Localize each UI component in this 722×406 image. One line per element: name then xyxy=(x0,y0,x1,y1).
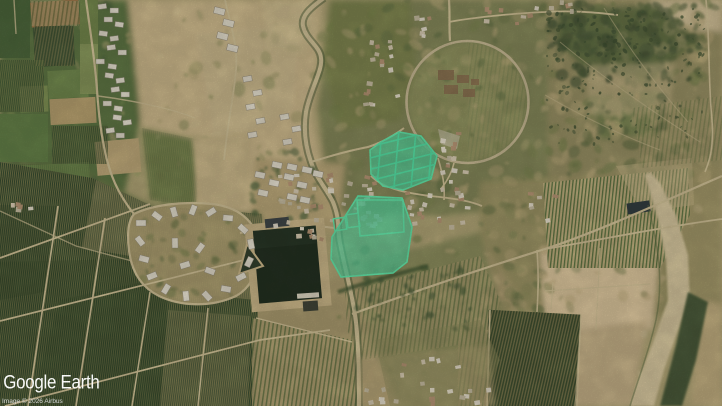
svg-text:Image © 2026 Airbus: Image © 2026 Airbus xyxy=(2,397,64,405)
svg-text:Google Earth: Google Earth xyxy=(3,372,99,393)
